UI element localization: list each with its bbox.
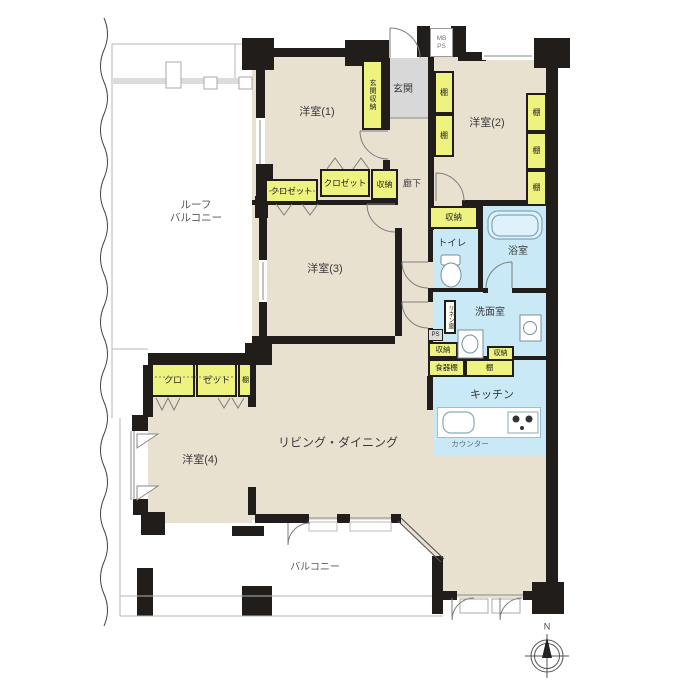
- wall: [483, 288, 488, 293]
- label-bedroom4: 洋室(4): [182, 454, 217, 468]
- shelf-label: 棚: [486, 364, 494, 372]
- window-gap: [259, 260, 267, 302]
- shelf-label: 棚: [533, 184, 541, 192]
- storage-label: 収納: [445, 213, 462, 222]
- wall: [428, 288, 433, 302]
- cupboard-label: 食器棚: [435, 364, 458, 372]
- wall: [252, 48, 348, 57]
- wall: [383, 58, 390, 130]
- wall: [259, 218, 267, 260]
- shelf-label: 棚: [440, 132, 448, 140]
- wall: [137, 568, 153, 616]
- closet-label: クロ: [164, 376, 182, 385]
- wall: [395, 228, 402, 336]
- label-counter: カウンター: [451, 439, 489, 448]
- shelf-box: 棚: [434, 114, 454, 157]
- shelf-box: 棚: [526, 170, 547, 206]
- wall: [478, 205, 483, 292]
- shelf-box: 棚: [434, 71, 454, 114]
- shelf-box: 棚: [238, 363, 252, 397]
- ps-box: PS: [428, 329, 443, 341]
- label-kitchen: キッチン: [470, 389, 514, 403]
- wall: [337, 514, 350, 523]
- label-toilet: トイレ: [438, 238, 467, 250]
- label-washroom: 洗面室: [475, 307, 505, 320]
- label-roof-line2: バルコニー: [170, 212, 222, 225]
- closet-box: クロ: [151, 363, 195, 397]
- wall: [141, 512, 165, 535]
- label-entrance: 玄関: [393, 84, 413, 97]
- wall: [532, 582, 564, 614]
- closet-label: ゼット: [203, 376, 230, 385]
- closet-box: クロゼット: [320, 169, 370, 197]
- label-bedroom3: 洋室(3): [307, 263, 342, 277]
- meter-box-ps-label: PS: [437, 43, 446, 51]
- wall: [248, 487, 256, 515]
- wall: [427, 376, 433, 410]
- linen-label: リネン庫: [447, 305, 453, 329]
- wall: [132, 415, 148, 431]
- entrance-storage-label: 玄関収納: [369, 79, 376, 111]
- label-bedroom1: 洋室(1): [299, 106, 334, 120]
- meter-box: MB PS: [430, 28, 453, 57]
- wall: [428, 230, 433, 262]
- meter-box-mb-label: MB: [437, 35, 447, 43]
- closet-label: クロゼット: [270, 187, 313, 196]
- shelf-label: 棚: [440, 89, 448, 97]
- entrance-porch: [388, 24, 420, 58]
- label-north: N: [544, 621, 551, 632]
- wall: [255, 514, 309, 523]
- shelf-label: 棚: [533, 147, 541, 155]
- window-gap: [256, 118, 265, 164]
- label-hallway: 廊下: [403, 178, 421, 189]
- closet-box: クロゼット: [265, 179, 318, 203]
- storage-label: 収納: [436, 346, 451, 354]
- label-bedroom2: 洋室(2): [469, 117, 504, 131]
- storage-box: 収納: [428, 342, 458, 358]
- label-balcony: バルコニー: [290, 562, 340, 575]
- ps-label: PS: [431, 332, 439, 338]
- closet-box: ゼット: [196, 363, 237, 397]
- label-roof-line1: ルーフ: [170, 199, 222, 212]
- storage-box: 収納: [371, 169, 398, 200]
- shelf-label: 棚: [242, 376, 249, 384]
- wall: [256, 68, 265, 118]
- window-gap: [482, 50, 534, 60]
- wall: [232, 526, 264, 536]
- linen-closet: リネン庫: [444, 300, 456, 334]
- wall: [443, 591, 457, 600]
- floor-living-extension: [398, 520, 548, 598]
- wall: [546, 60, 558, 584]
- shelf-box: 棚: [526, 93, 547, 132]
- break-line: [101, 18, 108, 626]
- floor-plan: MB PS 玄関収納 棚 棚 棚 棚 棚 クロゼット クロゼット 収納 収納 リ…: [0, 0, 690, 690]
- wall: [245, 343, 272, 365]
- compass-icon: [525, 634, 569, 678]
- storage-label: 収納: [377, 181, 393, 189]
- wall: [523, 591, 534, 600]
- label-living-dining: リビング・ダイニング: [278, 436, 398, 451]
- shelf-box: 棚: [465, 359, 514, 377]
- wall: [512, 288, 547, 293]
- wall: [432, 556, 443, 614]
- shelf-label: 棚: [533, 109, 541, 117]
- wall: [252, 336, 395, 344]
- storage-label: 収納: [494, 350, 508, 357]
- closet-label: クロゼット: [324, 179, 367, 188]
- wall: [242, 586, 272, 616]
- shelf-box: 棚: [526, 132, 547, 170]
- storage-box: 収納: [429, 206, 478, 229]
- wall: [417, 26, 430, 57]
- label-roof-balcony: ルーフ バルコニー: [170, 199, 222, 225]
- label-bath: 浴室: [508, 246, 528, 259]
- kitchen-counter: [437, 407, 541, 438]
- wall: [433, 288, 478, 292]
- wall: [391, 514, 401, 523]
- entrance-storage-box: 玄関収納: [362, 60, 383, 130]
- cupboard-box: 食器棚: [428, 359, 465, 377]
- wall: [259, 302, 267, 338]
